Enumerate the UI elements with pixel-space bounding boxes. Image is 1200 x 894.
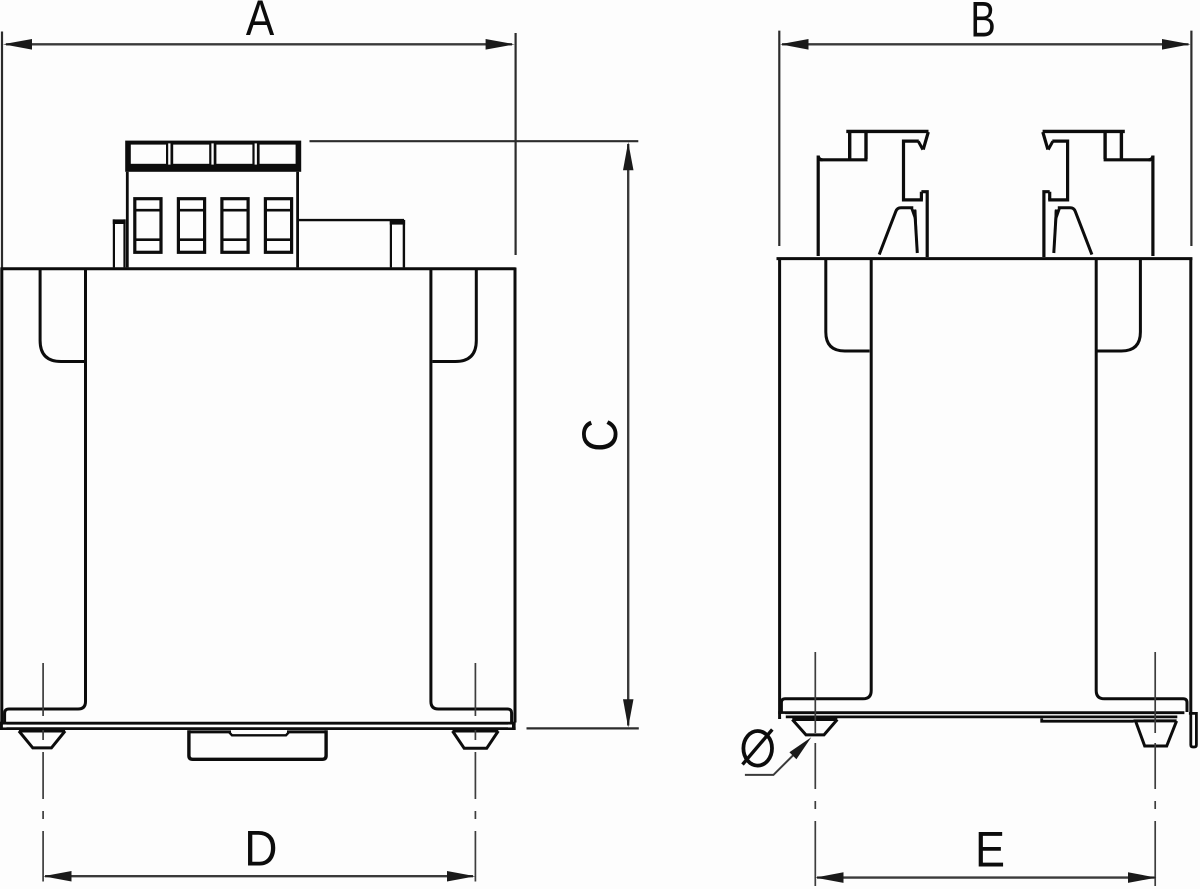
svg-text:D: D — [244, 822, 277, 877]
svg-text:E: E — [975, 822, 1005, 878]
svg-text:A: A — [246, 0, 274, 46]
svg-text:B: B — [970, 0, 995, 48]
svg-text:C: C — [573, 419, 628, 452]
